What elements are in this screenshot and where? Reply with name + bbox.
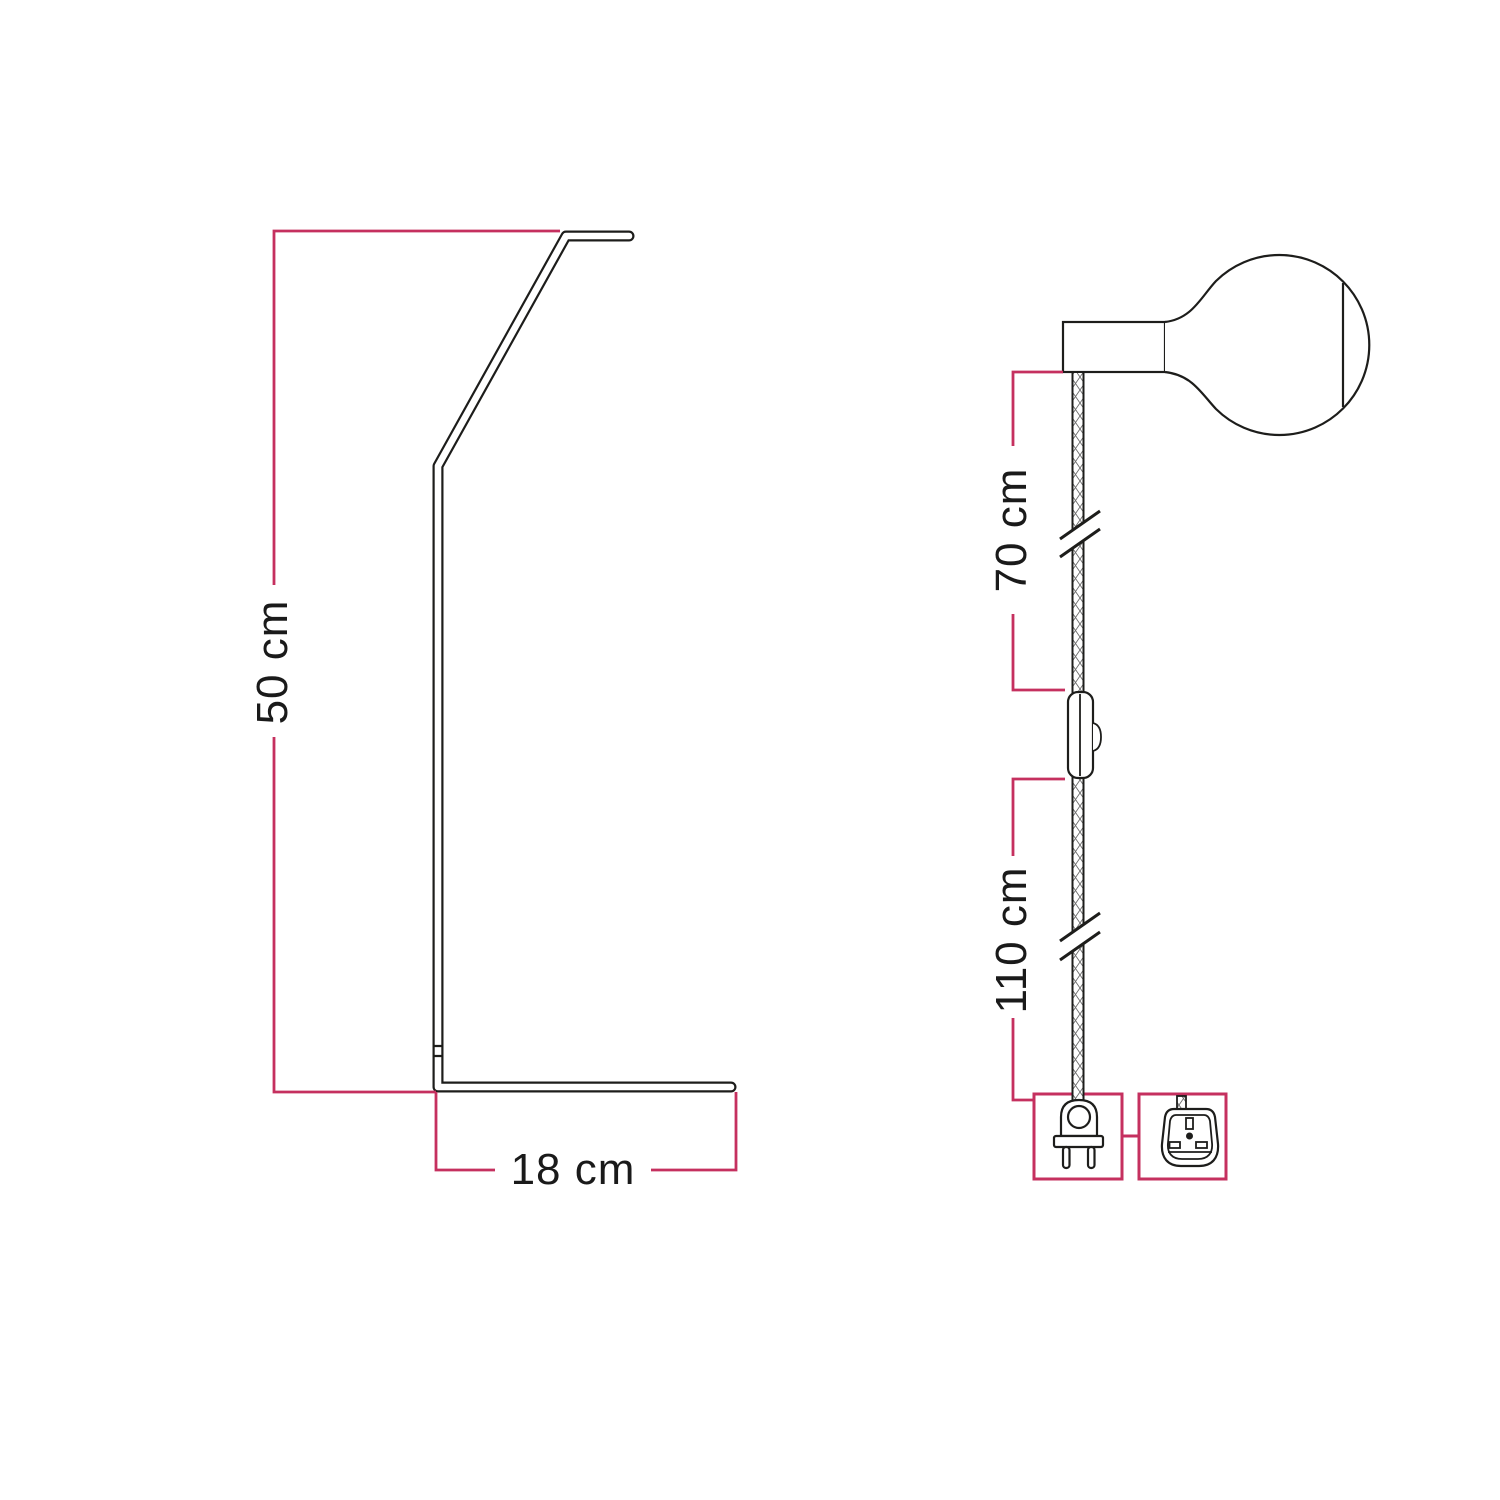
stand-depth-label: 18 cm	[511, 1145, 636, 1194]
dimension-diagram: 50 cm 18 cm 70 cm 110 cm	[0, 0, 1500, 1500]
uk-plug-earth-slot	[1186, 1118, 1193, 1129]
plug-pin-left	[1063, 1147, 1070, 1168]
pendant-figure: 70 cm 110 cm	[987, 255, 1369, 1179]
stand-height-dimension: 50 cm	[248, 231, 560, 1092]
euro-two-pin-plug-icon	[1054, 1100, 1103, 1168]
stand-figure: 50 cm 18 cm	[248, 231, 736, 1194]
plug-pin-right	[1088, 1147, 1095, 1168]
lower-cable-dimension: 110 cm	[987, 779, 1065, 1100]
diagram-canvas: 50 cm 18 cm 70 cm 110 cm	[0, 0, 1500, 1500]
stand-height-label: 50 cm	[248, 600, 297, 725]
uk-plug-adapter-icon	[1162, 1096, 1218, 1166]
uk-plug-screw	[1186, 1133, 1193, 1140]
inline-switch-icon	[1068, 692, 1101, 778]
uk-plug-slot-left	[1170, 1142, 1181, 1148]
stand-outline-icon	[433, 236, 731, 1087]
lower-cable-label: 110 cm	[987, 866, 1036, 1013]
upper-cable-label: 70 cm	[987, 468, 1036, 593]
uk-plug-slot-right	[1196, 1142, 1207, 1148]
lamp-socket-icon	[1063, 322, 1165, 372]
upper-cable-dimension: 70 cm	[987, 372, 1065, 690]
globe-bulb-icon	[1165, 255, 1369, 435]
stand-depth-dimension: 18 cm	[436, 1092, 736, 1194]
